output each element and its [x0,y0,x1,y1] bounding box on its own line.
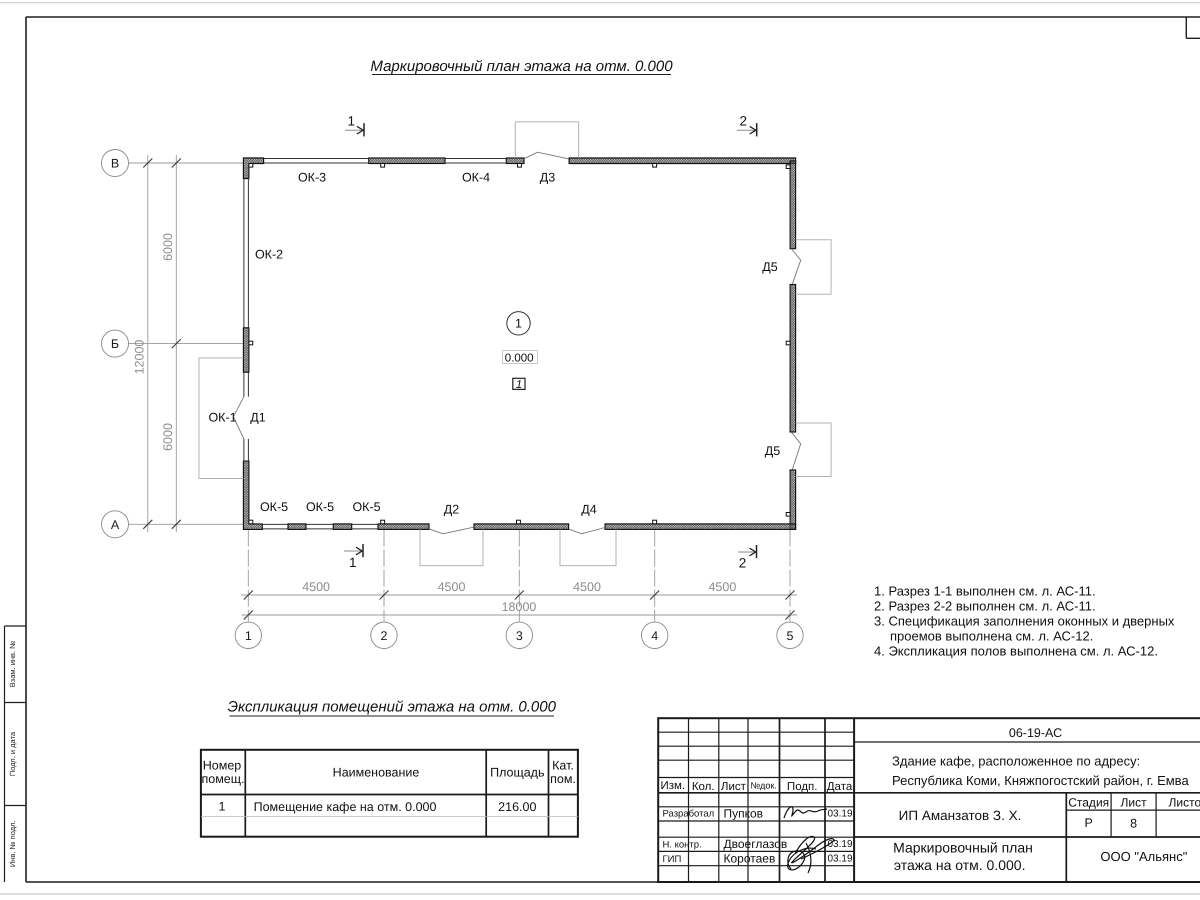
svg-text:Лист: Лист [721,781,747,793]
svg-text:Маркировочный план: Маркировочный план [893,840,1033,856]
svg-text:5: 5 [787,629,794,643]
svg-text:Лист: Лист [1121,796,1148,810]
svg-text:0.000: 0.000 [505,352,534,364]
svg-text:Д5: Д5 [765,444,780,458]
svg-text:Листов: Листов [1169,796,1200,810]
svg-text:№док.: №док. [751,780,777,790]
svg-text:ООО "Альянс": ООО "Альянс" [1100,849,1187,864]
svg-text:4500: 4500 [573,580,601,594]
svg-text:ОК-3: ОК-3 [298,171,326,185]
svg-text:Экспликация помещений этажа на: Экспликация помещений этажа на отм. 0.00… [228,699,557,716]
svg-text:Пупков: Пупков [724,806,764,820]
svg-text:Д1: Д1 [250,411,265,425]
svg-text:1. Разрез 1-1 выполнен см. л.: 1. Разрез 1-1 выполнен см. л. АС-11. [874,584,1096,599]
svg-text:Д3: Д3 [540,171,555,185]
svg-text:2: 2 [739,556,747,571]
svg-text:4: 4 [651,629,658,643]
svg-text:6000: 6000 [161,233,175,261]
svg-text:Изм.: Изм. [660,780,685,792]
svg-text:проемов выполнена см. л. АС-12: проемов выполнена см. л. АС-12. [890,628,1093,643]
svg-text:Площадь: Площадь [490,765,544,779]
svg-text:2: 2 [381,629,388,643]
svg-text:3: 3 [516,629,523,643]
svg-text:Дата: Дата [827,781,853,793]
svg-text:2. Разрез 2-2 выполнен см. л.: 2. Разрез 2-2 выполнен см. л. АС-11. [874,599,1096,614]
svg-text:ОК-5: ОК-5 [306,500,334,514]
svg-text:ОК-5: ОК-5 [352,500,380,514]
svg-text:Двоеглазов: Двоеглазов [724,837,788,851]
svg-text:18000: 18000 [502,600,537,614]
svg-text:ОК-1: ОК-1 [208,411,236,425]
svg-text:Подп. и дата: Подп. и дата [8,731,17,776]
svg-text:Инв. № подл.: Инв. № подл. [8,820,17,867]
svg-text:Номер: Номер [203,758,242,772]
svg-text:Д2: Д2 [444,503,459,517]
svg-text:8: 8 [1130,816,1137,830]
svg-text:Помещение кафе на отм. 0.000: Помещение кафе на отм. 0.000 [254,800,437,814]
svg-text:Д4: Д4 [581,503,596,517]
svg-text:Взам. инв. №: Взам. инв. № [8,641,17,687]
svg-text:4500: 4500 [708,580,736,594]
svg-text:Маркировочный план этажа на от: Маркировочный план этажа на отм. 0.000 [370,58,673,75]
svg-text:1: 1 [349,555,357,570]
svg-text:Наименование: Наименование [333,765,420,779]
svg-text:2: 2 [740,114,748,129]
svg-text:Д5: Д5 [762,260,777,274]
svg-text:1: 1 [516,379,522,391]
svg-text:этажа на отм. 0.000.: этажа на отм. 0.000. [894,857,1026,873]
svg-text:Кат.: Кат. [552,758,574,772]
svg-text:Р: Р [1085,816,1093,830]
svg-text:1: 1 [219,799,226,813]
svg-text:Коротаев: Коротаев [724,851,776,865]
svg-text:3. Спецификация заполнения око: 3. Спецификация заполнения оконных и две… [874,614,1175,629]
svg-text:Б: Б [111,337,119,351]
svg-text:06-19-АС: 06-19-АС [1009,726,1062,740]
svg-text:помещ.: помещ. [201,772,244,786]
svg-text:03.19: 03.19 [827,808,852,819]
svg-text:В: В [111,157,119,171]
svg-text:216.00: 216.00 [498,800,536,814]
svg-text:03.19: 03.19 [827,839,852,850]
svg-text:ГИП: ГИП [663,854,682,865]
svg-text:Кол.: Кол. [692,781,715,793]
svg-text:ИП Аманзатов З. Х.: ИП Аманзатов З. Х. [899,808,1022,823]
svg-text:Разработал: Разработал [663,809,715,820]
svg-text:1: 1 [348,114,356,129]
svg-text:ОК-4: ОК-4 [462,171,490,185]
svg-text:1: 1 [245,629,252,643]
svg-text:ОК-5: ОК-5 [260,500,288,514]
svg-text:4500: 4500 [438,580,466,594]
svg-text:4500: 4500 [302,580,330,594]
svg-text:Республика Коми, Княжпогостски: Республика Коми, Княжпогостский район, г… [892,773,1189,788]
svg-text:6000: 6000 [161,423,175,451]
svg-text:Н. контр.: Н. контр. [663,840,702,851]
svg-text:12000: 12000 [133,340,147,375]
svg-text:4. Экспликация полов выполнена: 4. Экспликация полов выполнена см. л. АС… [874,643,1158,658]
svg-text:1: 1 [515,317,522,331]
svg-text:03.19: 03.19 [827,853,852,864]
svg-text:Стадия: Стадия [1068,795,1109,809]
svg-text:Здание кафе, расположенное по: Здание кафе, расположенное по адресу: [892,754,1140,769]
svg-text:А: А [111,518,120,532]
svg-text:Подп.: Подп. [787,781,818,793]
svg-text:ОК-2: ОК-2 [255,248,283,262]
svg-text:пом.: пом. [550,772,576,786]
